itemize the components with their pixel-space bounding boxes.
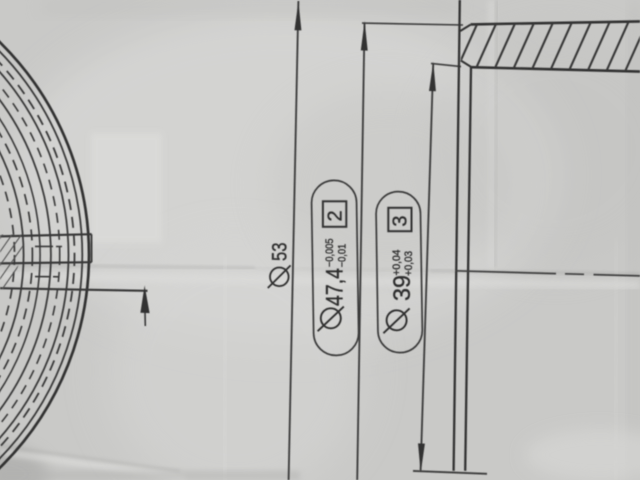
svg-text:47,4: 47,4: [321, 268, 348, 306]
svg-text:+0,03: +0,03: [403, 251, 415, 276]
svg-text:53: 53: [268, 242, 292, 261]
svg-text:−0,005: −0,005: [324, 239, 336, 268]
svg-text:2: 2: [324, 210, 346, 221]
svg-text:−0,01: −0,01: [337, 244, 349, 268]
svg-text:+0,04: +0,04: [391, 250, 403, 276]
svg-text:3: 3: [390, 215, 412, 226]
svg-text:39: 39: [389, 275, 416, 301]
